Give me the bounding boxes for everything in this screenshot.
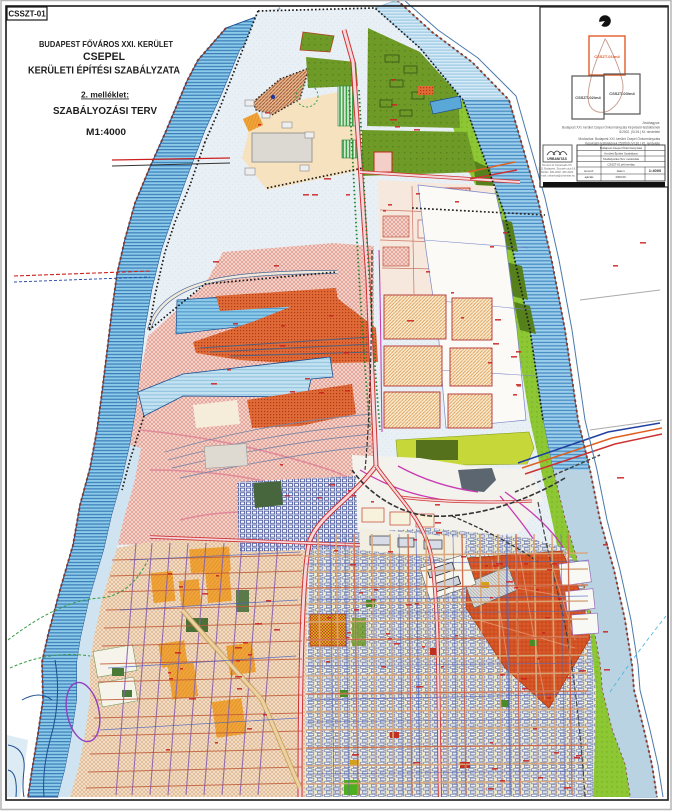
svg-text:URBANITAS: URBANITAS <box>547 157 567 161</box>
svg-text:Tel/fax: 466-2018, 466-4220: Tel/fax: 466-2018, 466-4220 <box>541 170 574 174</box>
svg-text:BUDAPEST FŐVÁROS XXI. KERÜLET: BUDAPEST FŐVÁROS XXI. KERÜLET <box>39 38 174 49</box>
svg-text:Kerületi Építési Szabályzat: Kerületi Építési Szabályzat <box>604 151 637 156</box>
svg-text:2009.06.: 2009.06. <box>616 175 627 179</box>
svg-text:ajánlás: ajánlás <box>585 175 594 179</box>
svg-text:e-mail: urbanitas@urbanitas.hu: e-mail: urbanitas@urbanitas.hu <box>539 174 576 178</box>
svg-text:M1:4000: M1:4000 <box>86 127 126 138</box>
svg-text:1111 Budapest, Stoczek utca 19: 1111 Budapest, Stoczek utca 19. <box>538 167 576 171</box>
svg-text:Tervező és Tanácsadó Kft.: Tervező és Tanácsadó Kft. <box>542 163 573 167</box>
svg-text:CSEPEL: CSEPEL <box>83 51 125 63</box>
svg-text:CSSZT-03/m4: CSSZT-03/m4 <box>609 91 635 96</box>
svg-text:Jóváhagyva:: Jóváhagyva: <box>642 121 660 125</box>
svg-text:tervező:: tervező: <box>584 169 594 173</box>
svg-text:1:4000: 1:4000 <box>649 168 662 173</box>
svg-text:Szabályozási Terv módosítás: Szabályozási Terv módosítás <box>603 157 640 161</box>
svg-text:2. melléklet:: 2. melléklet: <box>81 90 129 100</box>
svg-text:Budapest XXI. kerület Csepel Ö: Budapest XXI. kerület Csepel Önkormányza… <box>562 126 660 130</box>
svg-text:Módosítva: Budapest XXI. kerül: Módosítva: Budapest XXI. kerület Csepel … <box>579 137 661 141</box>
svg-text:KERÜLETI ÉPÍTÉSI SZABÁLYZATA: KERÜLETI ÉPÍTÉSI SZABÁLYZATA <box>28 64 180 77</box>
svg-text:dátum:: dátum: <box>617 169 626 173</box>
svg-text:CSSZT-01 jelű tervlap: CSSZT-01 jelű tervlap <box>607 163 635 167</box>
svg-text:CSSZT-02/m4: CSSZT-02/m4 <box>575 95 601 100</box>
svg-text:Budapest-Csepel Önkormányzata: Budapest-Csepel Önkormányzata <box>600 146 642 150</box>
svg-text:CSSZT-01: CSSZT-01 <box>8 10 46 19</box>
svg-text:CSSZT-01/m4: CSSZT-01/m4 <box>594 54 620 59</box>
svg-text:6/2002. (III.26.) Kt. rendelet: 6/2002. (III.26.) Kt. rendelete <box>619 130 660 134</box>
svg-text:SZABÁLYOZÁSI TERV: SZABÁLYOZÁSI TERV <box>53 104 157 117</box>
